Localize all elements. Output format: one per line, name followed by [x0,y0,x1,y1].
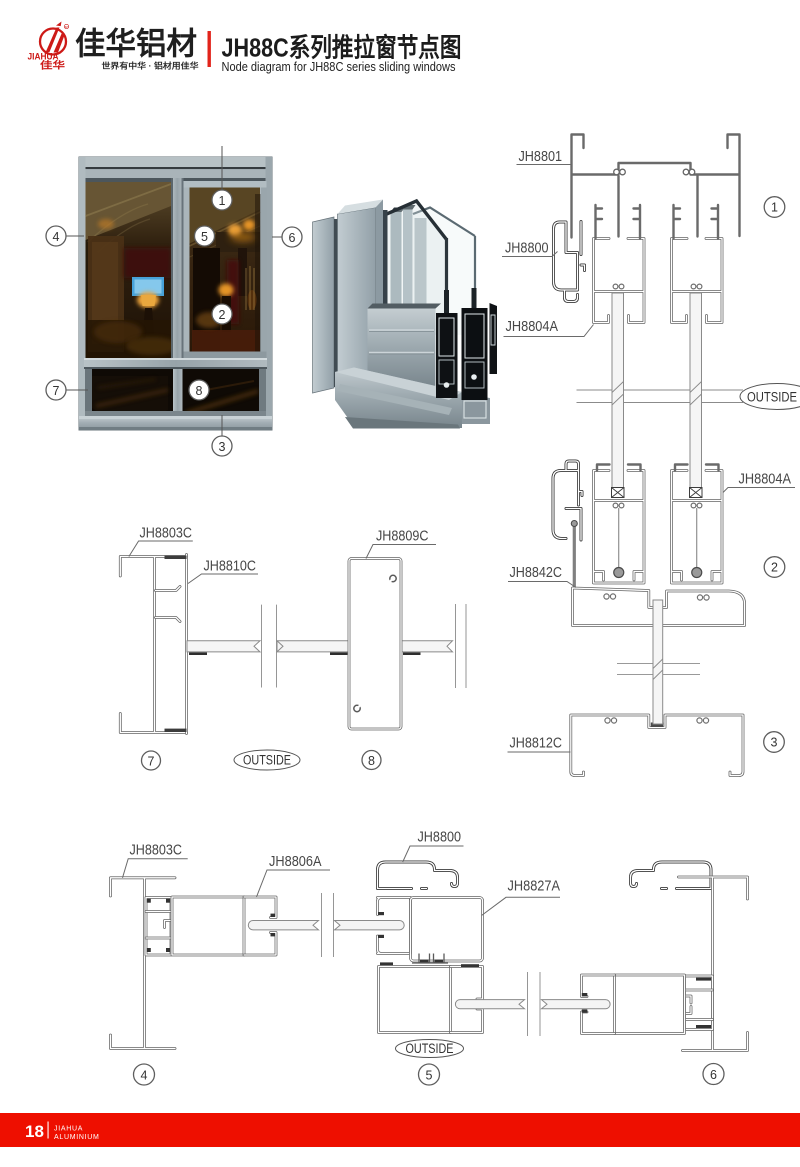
svg-text:8: 8 [368,754,375,768]
svg-text:3: 3 [771,736,778,750]
svg-text:JH88C系列推拉窗节点图: JH88C系列推拉窗节点图 [222,33,462,63]
svg-text:2: 2 [771,561,778,575]
svg-text:JH8809C: JH8809C [376,529,429,545]
svg-text:OUTSIDE: OUTSIDE [243,753,291,768]
svg-text:世界有中华 · 铝材用佳华: 世界有中华 · 铝材用佳华 [102,61,199,71]
svg-text:4: 4 [53,230,60,244]
svg-text:1: 1 [771,201,778,215]
svg-text:JH8842C: JH8842C [510,565,563,581]
svg-text:JH8806A: JH8806A [269,854,322,870]
svg-text:OUTSIDE: OUTSIDE [406,1041,454,1056]
svg-text:4: 4 [141,1069,148,1083]
svg-text:6: 6 [289,231,296,245]
svg-text:18: 18 [25,1122,44,1141]
svg-text:JH8801: JH8801 [519,149,563,165]
svg-text:JH8812C: JH8812C [510,736,563,752]
svg-text:7: 7 [53,384,60,398]
svg-text:5: 5 [426,1069,433,1083]
svg-text:JH8804A: JH8804A [506,319,559,335]
svg-text:1: 1 [219,194,226,208]
svg-text:JIAHUA: JIAHUA [54,1126,83,1133]
svg-text:JH8804A: JH8804A [739,472,792,488]
svg-text:Node diagram for JH88C series: Node diagram for JH88C series sliding wi… [222,60,456,74]
svg-text:佳华铝材: 佳华铝材 [75,27,197,62]
svg-text:佳华: 佳华 [40,60,66,72]
svg-text:JH8827A: JH8827A [508,879,561,895]
svg-text:6: 6 [710,1068,717,1082]
svg-text:2: 2 [219,308,226,322]
svg-text:OUTSIDE: OUTSIDE [747,390,797,405]
svg-text:3: 3 [219,440,226,454]
svg-text:7: 7 [148,755,155,769]
svg-text:5: 5 [201,230,208,244]
svg-text:JH8803C: JH8803C [130,843,183,859]
svg-text:JH8810C: JH8810C [204,559,257,575]
svg-text:ALUMINIUM: ALUMINIUM [54,1134,100,1141]
svg-text:R: R [65,24,68,29]
svg-text:8: 8 [196,384,203,398]
svg-text:JH8803C: JH8803C [140,526,193,542]
svg-text:JH8800: JH8800 [505,241,549,257]
svg-text:JH8800: JH8800 [418,830,462,846]
